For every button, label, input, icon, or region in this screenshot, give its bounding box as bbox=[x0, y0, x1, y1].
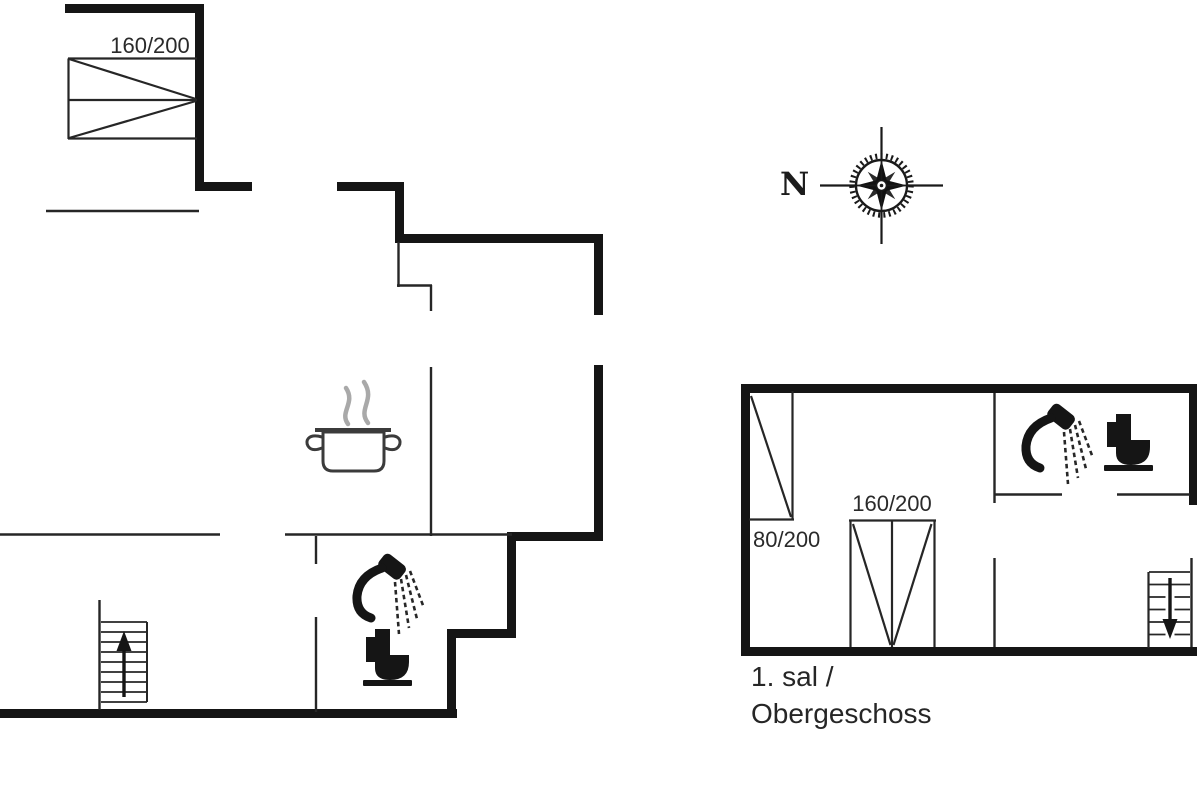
upper-floor-double-bed-size-label: 160/200 bbox=[842, 491, 942, 517]
single-bed-icon bbox=[749, 391, 794, 520]
ground-floor-bed-size-label: 160/200 bbox=[100, 33, 200, 59]
ground-floor-interior-walls bbox=[0, 211, 512, 712]
double-bed-icon bbox=[849, 521, 936, 648]
upper-floor-single-bed-size-label: 80/200 bbox=[753, 527, 820, 553]
stairs-down-icon bbox=[1149, 572, 1191, 648]
toilet-icon bbox=[363, 629, 412, 686]
upper-floor-caption-line2: Obergeschoss bbox=[751, 695, 932, 732]
toilet-icon bbox=[1104, 414, 1153, 471]
compass-rose-icon bbox=[820, 127, 943, 244]
upper-floor-plan bbox=[741, 384, 1197, 656]
compass-north-label: N bbox=[780, 165, 809, 203]
cooking-pot-icon bbox=[307, 382, 400, 471]
shower-icon bbox=[357, 552, 424, 634]
shower-icon bbox=[1026, 402, 1093, 484]
ground-floor-plan bbox=[0, 4, 603, 718]
ground-floor-walls bbox=[0, 4, 603, 718]
floor-plan-drawing bbox=[0, 0, 1200, 800]
upper-floor-caption: 1. sal / Obergeschoss bbox=[751, 658, 932, 732]
double-bed-icon bbox=[68, 59, 197, 140]
stairs-up-icon bbox=[100, 600, 148, 710]
upper-floor-caption-line1: 1. sal / bbox=[751, 658, 932, 695]
floor-plan-page: 160/200 N 80/200 160/200 1. sal / Oberge… bbox=[0, 0, 1200, 800]
